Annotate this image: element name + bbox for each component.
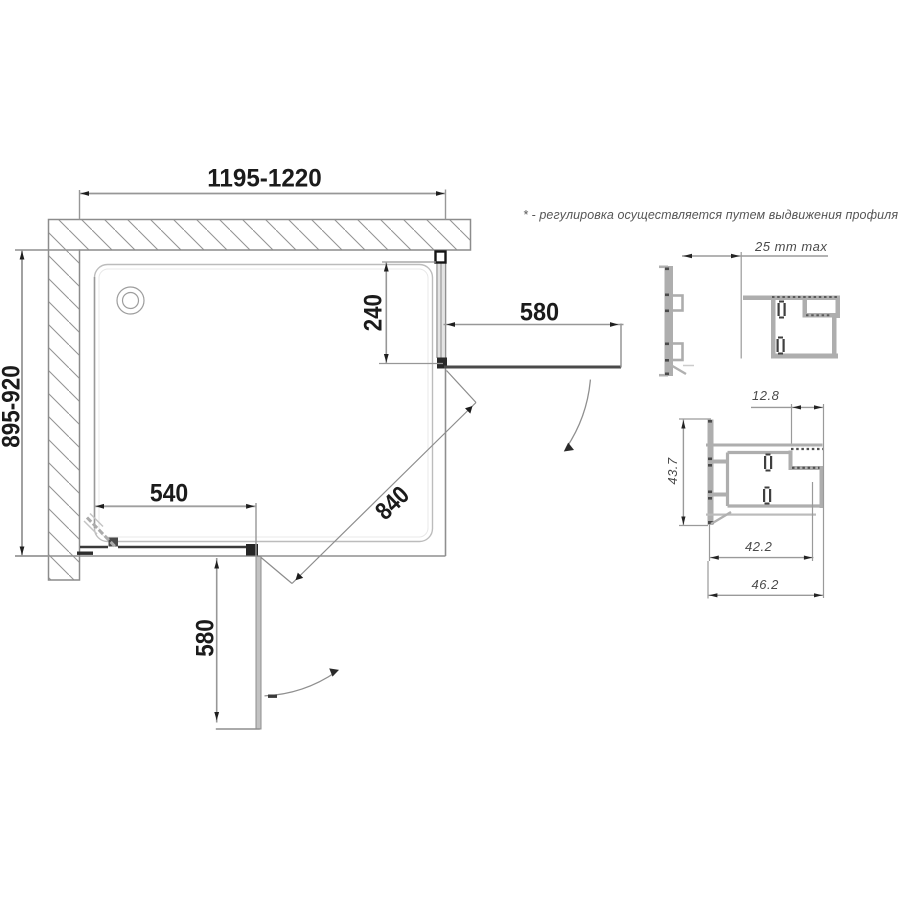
svg-text:46.2: 46.2 (752, 577, 780, 592)
svg-text:580: 580 (191, 619, 219, 657)
svg-text:240: 240 (360, 294, 387, 331)
svg-text:43.7: 43.7 (665, 457, 680, 485)
svg-text:580: 580 (520, 299, 559, 327)
svg-text:* - регулировка осуществляется: * - регулировка осуществляется путем выд… (523, 208, 898, 222)
svg-text:540: 540 (150, 480, 188, 508)
svg-text:1195-1220: 1195-1220 (207, 165, 322, 192)
svg-text:25 mm max: 25 mm max (754, 239, 827, 254)
svg-text:895-920: 895-920 (0, 365, 26, 448)
svg-text:42.2: 42.2 (745, 539, 773, 554)
svg-text:12.8: 12.8 (752, 388, 780, 403)
